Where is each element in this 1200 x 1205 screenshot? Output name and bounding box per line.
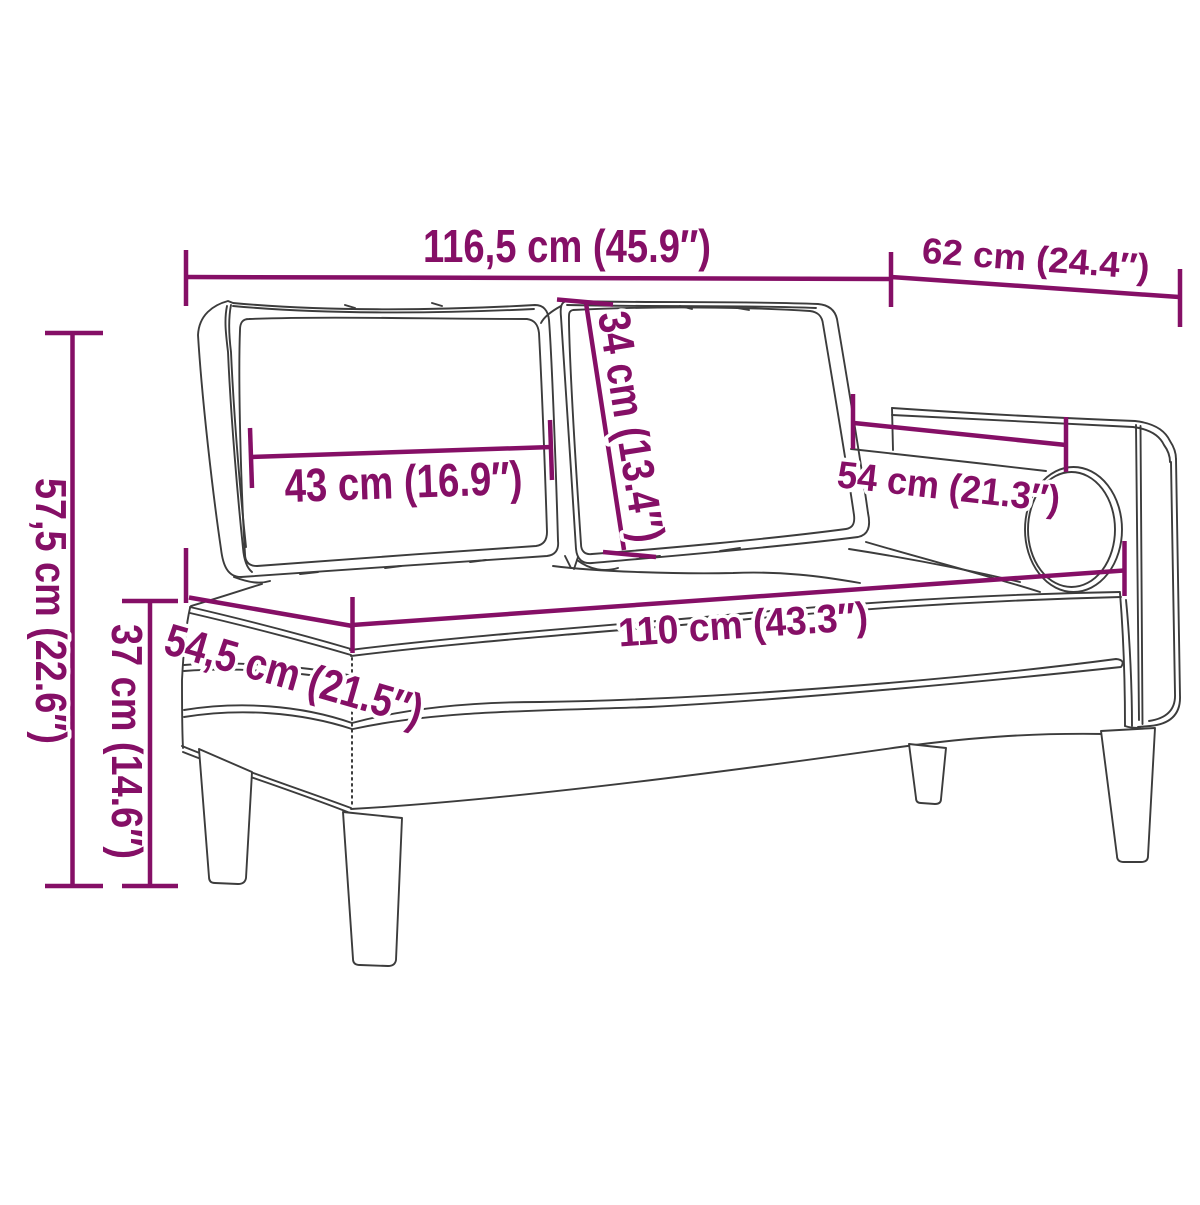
svg-text:116,5 cm (45.9″): 116,5 cm (45.9″) <box>423 220 711 272</box>
svg-text:57,5 cm (22.6″): 57,5 cm (22.6″) <box>26 478 75 744</box>
svg-text:43 cm (16.9″): 43 cm (16.9″) <box>284 451 524 512</box>
svg-text:37 cm (14.6″): 37 cm (14.6″) <box>102 624 151 859</box>
svg-text:54,5 cm (21.5″): 54,5 cm (21.5″) <box>159 614 429 736</box>
svg-text:62 cm (24.4″): 62 cm (24.4″) <box>921 230 1151 288</box>
svg-text:54 cm (21.3″): 54 cm (21.3″) <box>835 454 1062 521</box>
